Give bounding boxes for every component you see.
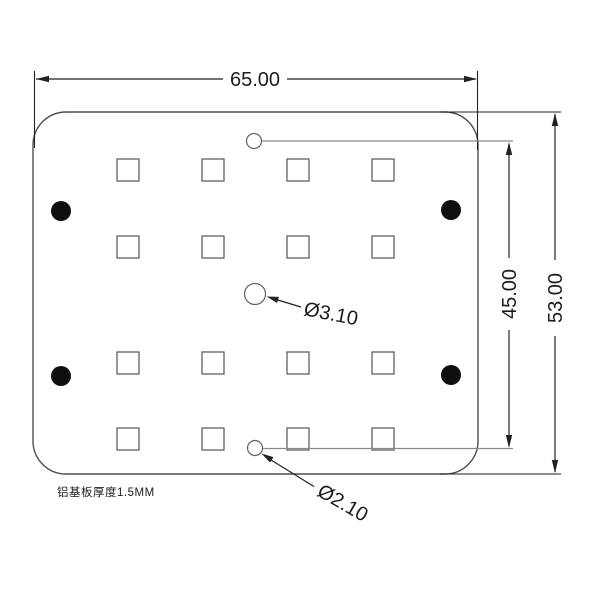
arrowhead-down-icon bbox=[506, 435, 512, 448]
mounting-hole bbox=[441, 200, 461, 220]
dim-width-label: 65.00 bbox=[230, 69, 280, 91]
arrowhead-down-icon bbox=[552, 460, 558, 473]
center-hole bbox=[245, 284, 266, 305]
led-pad bbox=[372, 159, 394, 181]
led-pad bbox=[117, 236, 139, 258]
led-pad bbox=[117, 352, 139, 374]
led-pad bbox=[287, 428, 309, 450]
mounting-hole bbox=[51, 201, 71, 221]
dim-outer-height-label: 53.00 bbox=[545, 273, 567, 323]
bottom-edge-hole bbox=[248, 441, 263, 456]
thickness-note: 铝基板厚度1.5MM bbox=[57, 485, 155, 499]
arrowhead-up-icon bbox=[506, 142, 512, 155]
edge-hole-diameter-label: Ø2.10 bbox=[314, 480, 372, 526]
led-pad bbox=[372, 236, 394, 258]
technical-drawing-page: 65.00 45.00 53.00 Ø3.10 Ø2.10 铝基板厚度1.5MM bbox=[0, 0, 600, 600]
led-pad bbox=[117, 159, 139, 181]
led-pad bbox=[372, 428, 394, 450]
top-edge-hole bbox=[247, 134, 262, 149]
led-pad bbox=[202, 352, 224, 374]
arrowhead-right-icon bbox=[464, 76, 477, 82]
led-pad bbox=[117, 428, 139, 450]
pcb-dimension-drawing: 65.00 45.00 53.00 Ø3.10 Ø2.10 铝基板厚度1.5MM bbox=[0, 0, 600, 600]
arrowhead-left-icon bbox=[36, 76, 49, 82]
mounting-hole bbox=[51, 366, 71, 386]
led-pad bbox=[202, 159, 224, 181]
led-pad bbox=[202, 428, 224, 450]
led-pad bbox=[287, 352, 309, 374]
arrowhead-up-icon bbox=[552, 113, 558, 126]
led-pad bbox=[372, 352, 394, 374]
mounting-hole bbox=[441, 365, 461, 385]
led-pad bbox=[287, 159, 309, 181]
led-pad bbox=[287, 236, 309, 258]
led-pad bbox=[202, 236, 224, 258]
dim-inner-height-label: 45.00 bbox=[499, 269, 521, 319]
